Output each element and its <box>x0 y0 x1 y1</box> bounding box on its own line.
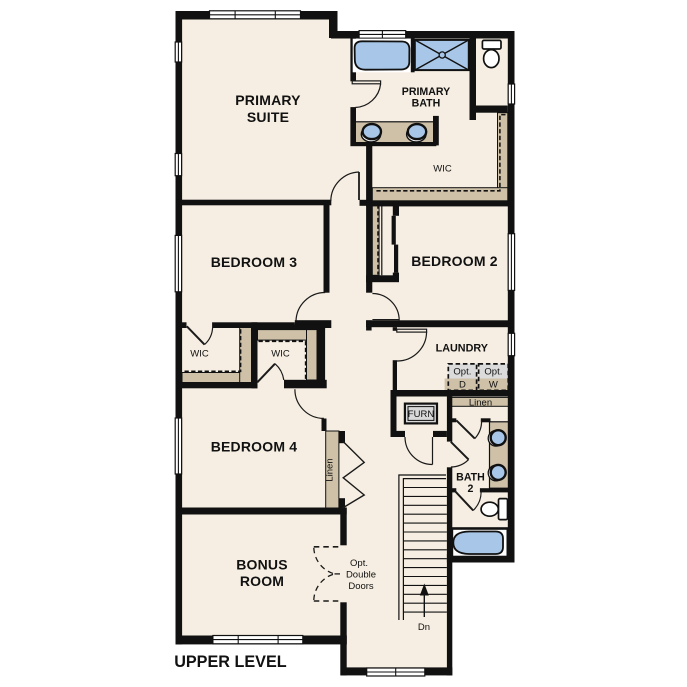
svg-text:Double: Double <box>346 570 376 581</box>
svg-text:BONUS: BONUS <box>236 557 288 573</box>
svg-text:LAUNDRY: LAUNDRY <box>436 343 489 355</box>
svg-text:SUITE: SUITE <box>247 109 289 125</box>
svg-text:BEDROOM 3: BEDROOM 3 <box>211 254 298 270</box>
svg-text:Opt.: Opt. <box>453 366 471 377</box>
svg-text:Dn: Dn <box>418 622 430 633</box>
svg-text:BEDROOM 2: BEDROOM 2 <box>411 253 498 269</box>
svg-text:Linen: Linen <box>469 397 492 408</box>
svg-text:BATH: BATH <box>412 97 441 109</box>
svg-text:WIC: WIC <box>433 163 452 174</box>
svg-text:WIC: WIC <box>271 349 290 360</box>
svg-text:D: D <box>459 380 466 391</box>
svg-text:UPPER LEVEL: UPPER LEVEL <box>174 653 287 671</box>
svg-text:PRIMARY: PRIMARY <box>402 86 450 98</box>
svg-text:Opt.: Opt. <box>350 558 368 569</box>
svg-text:2: 2 <box>468 483 474 495</box>
svg-text:ROOM: ROOM <box>240 573 284 589</box>
svg-text:Doors: Doors <box>348 581 374 592</box>
svg-text:W: W <box>489 380 498 391</box>
svg-text:PRIMARY: PRIMARY <box>235 92 301 108</box>
svg-text:BEDROOM 4: BEDROOM 4 <box>211 439 298 455</box>
svg-text:BATH: BATH <box>456 472 485 484</box>
svg-text:FURN: FURN <box>408 409 435 420</box>
svg-text:Linen: Linen <box>324 458 335 481</box>
svg-text:WIC: WIC <box>190 349 209 360</box>
svg-text:Opt.: Opt. <box>484 366 502 377</box>
